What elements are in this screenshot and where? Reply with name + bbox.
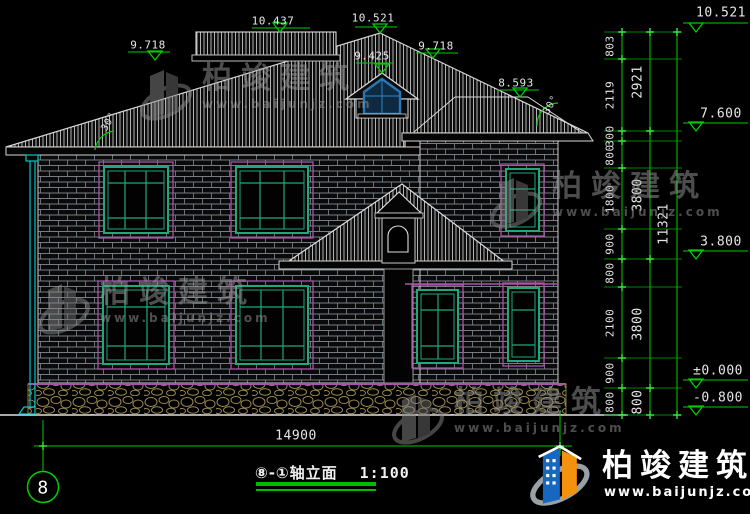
window-1f-3	[412, 285, 463, 368]
watermark-top: 柏竣建筑 www.baijunjz.com	[138, 62, 373, 124]
watermark-bottom: 柏竣建筑 www.baijunjz.com	[390, 386, 625, 448]
company-logo: 柏竣建筑 www.baijunjz.com	[528, 440, 750, 510]
watermark-name: 柏竣建筑	[202, 62, 373, 95]
dim-inner-7: 2100	[604, 309, 617, 338]
left-eave-band	[6, 147, 422, 155]
watermark-logo-icon	[488, 170, 544, 232]
dim-overall-width: 14900	[275, 429, 317, 444]
elev-label-eave: 7.600	[700, 107, 742, 122]
dim-middle-2: 3800	[631, 307, 646, 340]
elev-label-left-slope: 9.718	[130, 39, 166, 52]
company-name: 柏竣建筑	[602, 450, 750, 483]
watermark-url: www.baijunjz.com	[202, 97, 373, 111]
watermark-url: www.baijunjz.com	[552, 205, 723, 219]
elev-label-deck: 10.437	[252, 15, 295, 28]
dim-inner-3: 800	[604, 144, 617, 165]
elev-label-ridge: 10.521	[352, 12, 395, 25]
watermark-url: www.baijunjz.com	[454, 421, 625, 435]
dim-middle-0: 2921	[631, 65, 646, 98]
dim-inner-1: 2119	[604, 81, 617, 110]
elev-label-wing-ridge: 8.593	[498, 77, 534, 90]
axis-elevation-title: ⑧-①轴立面	[255, 464, 338, 482]
watermark-name: 柏竣建筑	[454, 386, 625, 419]
window-2f-1	[99, 162, 173, 238]
watermark-logo-icon	[36, 276, 92, 338]
watermark-right: 柏竣建筑 www.baijunjz.com	[488, 170, 723, 232]
watermark-logo-icon	[390, 386, 446, 448]
watermark-url: www.baijunjz.com	[100, 311, 271, 325]
drawing-title: ⑧-①轴立面1:100	[255, 462, 410, 483]
window-2f-2	[231, 162, 313, 238]
dim-inner-0: 803	[604, 35, 617, 56]
watermark-left: 柏竣建筑 www.baijunjz.com	[36, 276, 271, 338]
dim-inner-5: 900	[604, 233, 617, 254]
company-url: www.baijunjz.com	[602, 485, 750, 500]
elevation-drawing-canvas: 10.437 10.521 9.718 9.425 9.718 8.593 10…	[0, 0, 750, 514]
watermark-name: 柏竣建筑	[552, 170, 723, 203]
axis-bubble-number: 8	[37, 478, 48, 499]
elev-label-floor2: 3.800	[700, 235, 742, 250]
window-1f-4	[503, 283, 544, 366]
elev-label-foundation: -0.800	[693, 391, 743, 406]
watermark-logo-icon	[138, 62, 194, 124]
right-eave-band	[402, 133, 593, 141]
dim-middle-3: 800	[631, 390, 646, 415]
elev-label-right-slope: 9.718	[418, 40, 454, 53]
elev-label-ground: ±0.000	[693, 364, 743, 379]
elev-label-top: 10.521	[696, 6, 746, 21]
drawing-scale: 1:100	[360, 464, 410, 482]
dim-inner-8: 900	[604, 362, 617, 383]
company-url-text: www.baijunjz.com	[604, 485, 750, 500]
title-underline-thin	[256, 489, 376, 491]
roof-deck	[192, 32, 340, 61]
dim-inner-6: 800	[604, 262, 617, 283]
elev-label-dormer: 9.425	[354, 50, 390, 63]
watermark-name: 柏竣建筑	[100, 276, 271, 309]
company-logo-icon	[528, 440, 596, 510]
title-underline-thick	[256, 482, 376, 486]
